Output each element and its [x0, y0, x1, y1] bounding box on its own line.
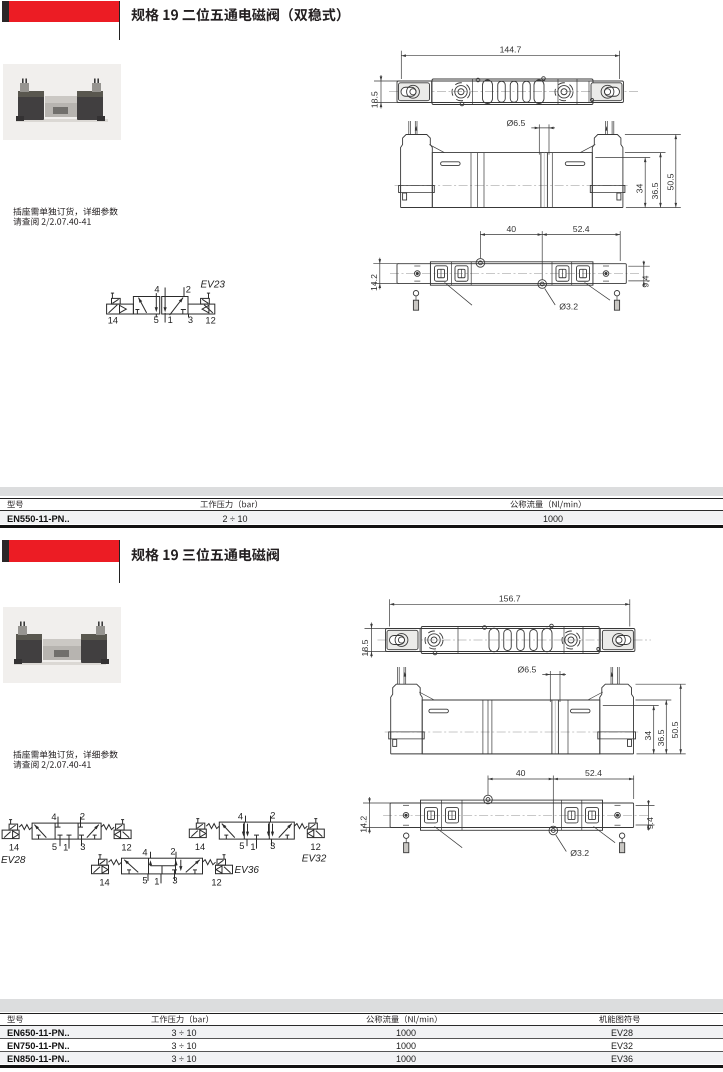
svg-text:3: 3: [270, 841, 275, 851]
svg-text:4: 4: [154, 285, 159, 295]
svg-text:34: 34: [643, 731, 653, 741]
svg-text:Ø3.2: Ø3.2: [559, 302, 578, 312]
svg-text:1: 1: [154, 877, 159, 887]
svg-text:52.4: 52.4: [585, 768, 602, 778]
svg-text:1: 1: [168, 315, 173, 325]
svg-text:36.5: 36.5: [656, 729, 666, 746]
svg-text:14: 14: [108, 316, 118, 326]
svg-text:14: 14: [9, 843, 19, 853]
svg-text:18.5: 18.5: [360, 639, 370, 656]
svg-text:14.2: 14.2: [369, 274, 379, 291]
svg-text:9.4: 9.4: [640, 275, 650, 287]
svg-text:50.5: 50.5: [665, 173, 675, 190]
svg-text:EV23: EV23: [201, 280, 226, 291]
svg-text:34: 34: [635, 184, 645, 194]
svg-text:40: 40: [506, 224, 516, 234]
svg-text:4: 4: [142, 848, 147, 858]
svg-text:EV32: EV32: [302, 854, 327, 865]
svg-text:Ø6.5: Ø6.5: [518, 665, 537, 675]
svg-text:EV36: EV36: [235, 865, 260, 876]
svg-text:5: 5: [52, 842, 57, 852]
svg-text:12: 12: [310, 842, 320, 852]
svg-text:3: 3: [80, 842, 85, 852]
svg-text:EV28: EV28: [1, 855, 26, 866]
svg-text:3: 3: [188, 315, 193, 325]
svg-text:2: 2: [170, 847, 175, 857]
svg-text:5: 5: [142, 875, 147, 885]
svg-text:2: 2: [270, 811, 275, 821]
svg-text:1: 1: [63, 843, 68, 853]
svg-text:9.4: 9.4: [645, 817, 655, 829]
svg-text:50.5: 50.5: [670, 721, 680, 738]
svg-text:Ø3.2: Ø3.2: [570, 848, 589, 858]
svg-text:18.5: 18.5: [370, 91, 380, 108]
svg-text:156.7: 156.7: [499, 593, 521, 603]
svg-text:12: 12: [205, 316, 215, 326]
svg-text:12: 12: [211, 878, 221, 888]
svg-text:14: 14: [99, 878, 109, 888]
svg-text:52.4: 52.4: [573, 224, 590, 234]
svg-text:4: 4: [51, 812, 56, 822]
svg-text:40: 40: [516, 768, 526, 778]
svg-text:36.5: 36.5: [650, 182, 660, 199]
svg-text:14.2: 14.2: [359, 816, 369, 833]
svg-text:Ø6.5: Ø6.5: [507, 118, 526, 128]
svg-text:2: 2: [80, 812, 85, 822]
svg-text:144.7: 144.7: [500, 45, 522, 55]
svg-text:2: 2: [186, 285, 191, 295]
svg-text:5: 5: [154, 315, 159, 325]
svg-text:3: 3: [172, 875, 177, 885]
svg-text:4: 4: [238, 812, 243, 822]
